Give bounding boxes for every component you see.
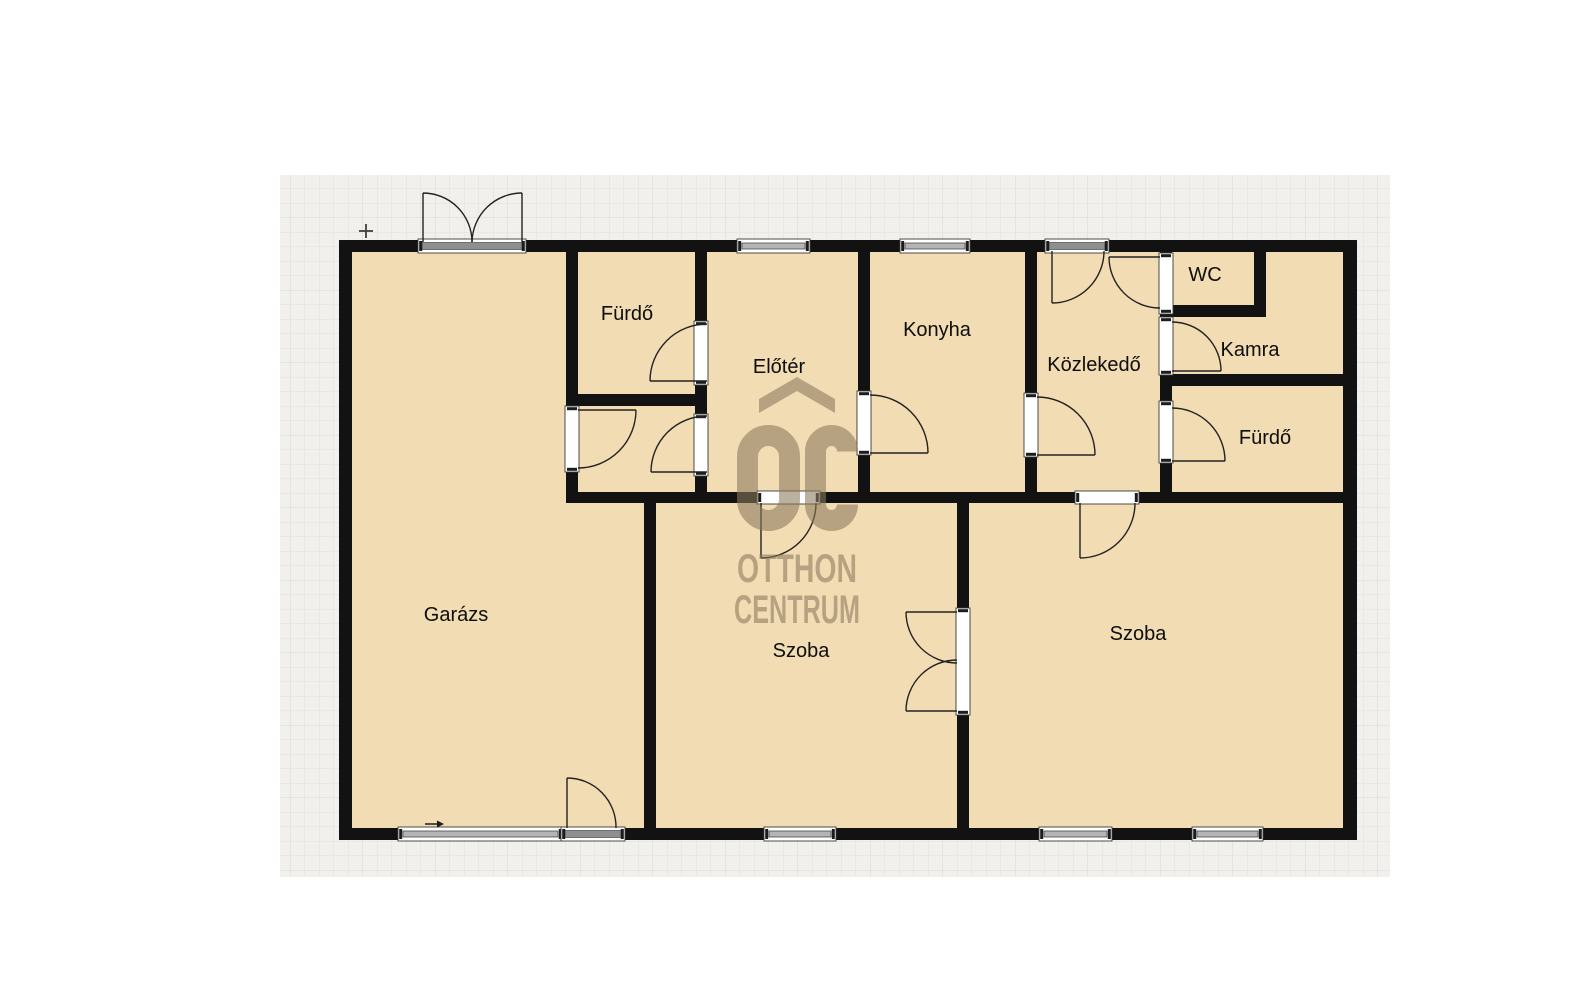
room-garazs-label: Garázs — [424, 604, 488, 626]
floorplan-page: OTTHONCENTRUMFürdőElőtérKonyhaKözlekedőW… — [0, 0, 1596, 1005]
wall-eloter-konyha — [858, 252, 870, 492]
wall-kamra-bottom — [1172, 374, 1343, 386]
room-wc-label: WC — [1188, 264, 1221, 286]
window-szoba1-bottom — [764, 827, 836, 841]
wall-bath1-bottom — [578, 394, 695, 406]
room-kamra-label: Kamra — [1221, 339, 1281, 361]
outer-wall-left — [339, 240, 352, 840]
wall-mid-horizontal — [566, 492, 1343, 503]
outer-wall-right — [1343, 240, 1357, 840]
room-furdo-1-label: Fürdő — [601, 303, 653, 325]
window-konyha-top — [900, 239, 970, 253]
room-szoba-1-label: Szoba — [773, 640, 831, 662]
window-szoba2-bottom-right — [1192, 827, 1263, 841]
room-eloter-label: Előtér — [753, 356, 806, 378]
wall-wc-bottom — [1172, 305, 1254, 317]
room-konyha-label: Konyha — [903, 319, 972, 341]
room-furdo-2-label: Fürdő — [1239, 427, 1291, 449]
floorplan-drawing: OTTHONCENTRUMFürdőElőtérKonyhaKözlekedőW… — [0, 0, 1596, 1005]
room-kozlekedo-label: Közlekedő — [1047, 354, 1140, 376]
window-szoba2-bottom-left — [1039, 827, 1112, 841]
watermark-centrum: CENTRUM — [734, 588, 860, 632]
room-szoba-2-label: Szoba — [1110, 623, 1168, 645]
wall-garage-szoba — [644, 503, 656, 828]
wall-wc-right — [1254, 252, 1266, 317]
window-garage-bottom — [398, 827, 563, 841]
floor-area — [352, 252, 1345, 828]
window-eloter-top — [737, 239, 810, 253]
watermark-otthon: OTTHON — [737, 547, 857, 591]
